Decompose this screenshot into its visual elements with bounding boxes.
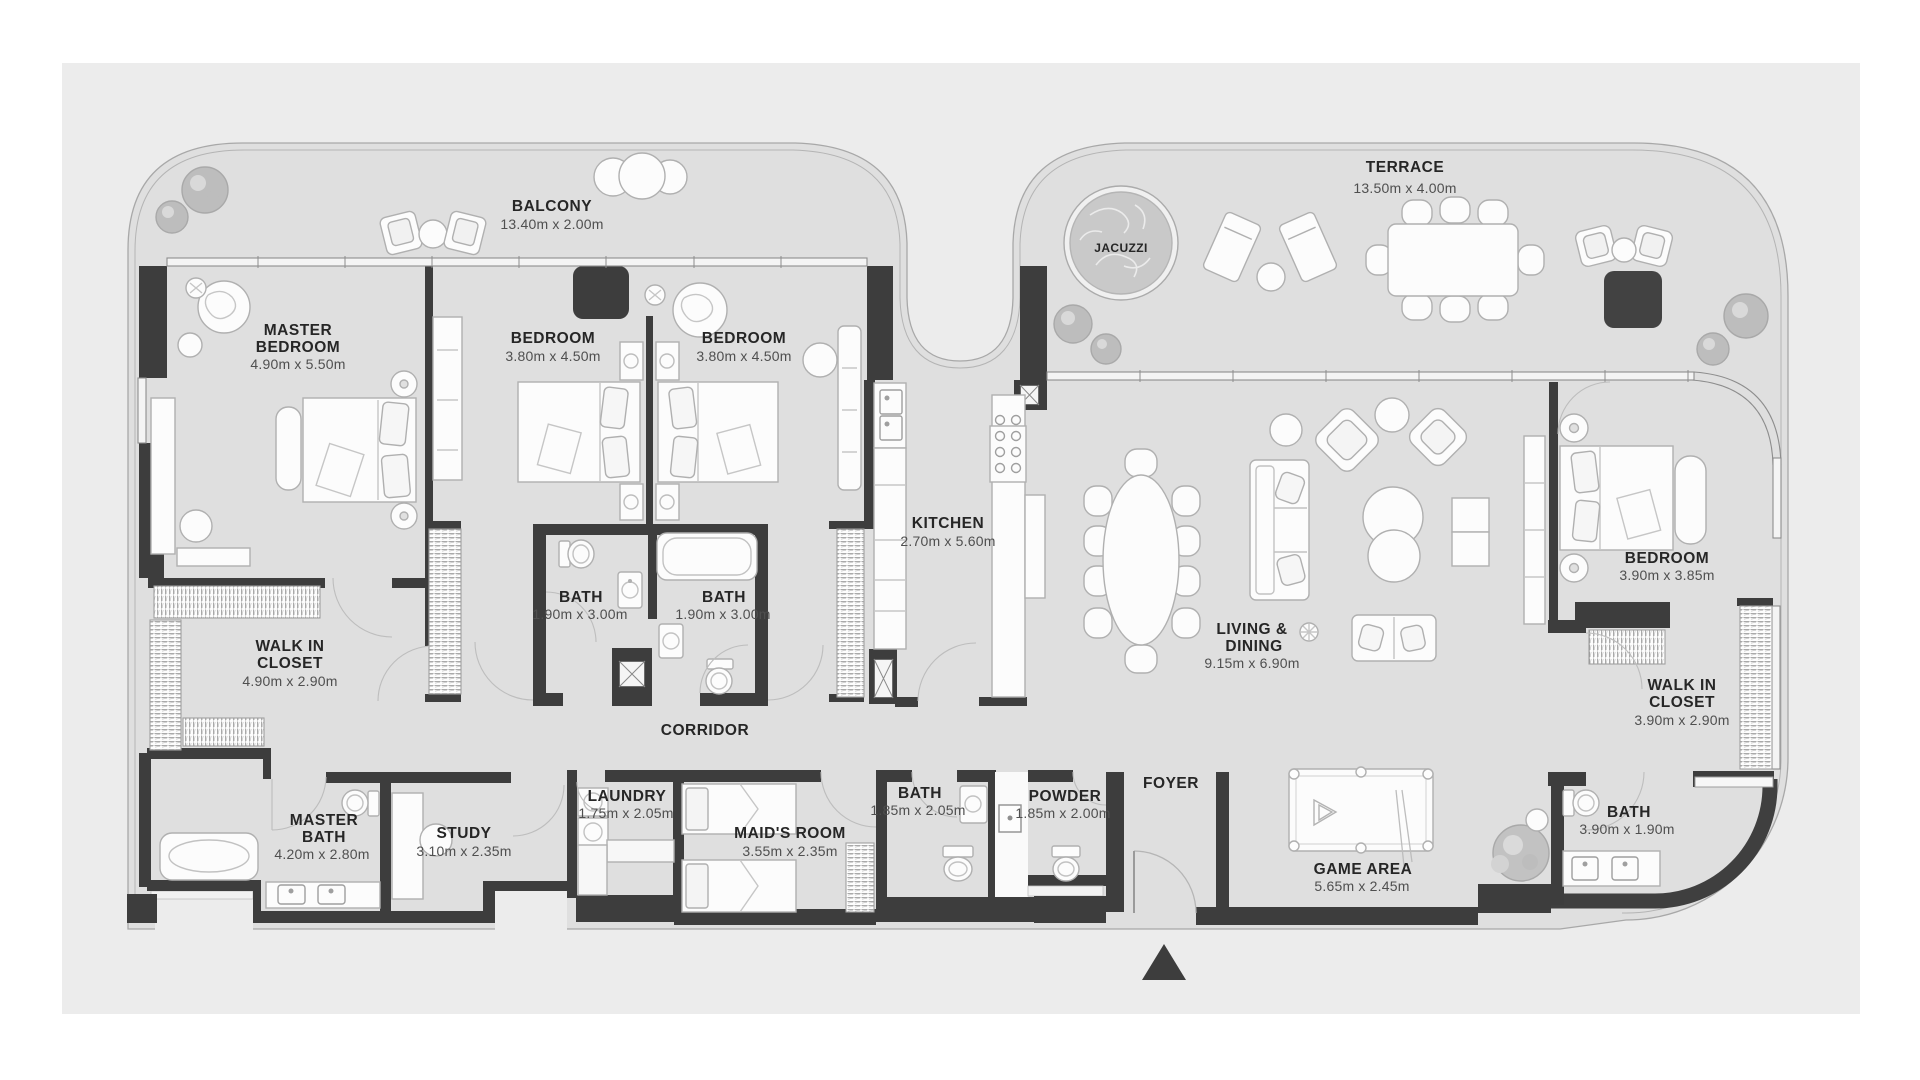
svg-text:4.90m x 5.50m: 4.90m x 5.50m [250,356,345,372]
svg-text:LIVING &: LIVING & [1216,621,1287,638]
svg-text:3.55m x 2.35m: 3.55m x 2.35m [742,843,837,859]
svg-text:3.90m x 2.90m: 3.90m x 2.90m [1634,712,1729,728]
svg-text:DINING: DINING [1225,638,1282,655]
svg-text:BATH: BATH [302,829,346,846]
svg-text:MAID'S ROOM: MAID'S ROOM [734,825,846,842]
svg-text:BATH: BATH [1607,804,1651,821]
svg-text:LAUNDRY: LAUNDRY [588,788,667,805]
svg-text:13.50m x 4.00m: 13.50m x 4.00m [1353,180,1456,196]
svg-text:WALK IN: WALK IN [1648,677,1717,694]
svg-text:KITCHEN: KITCHEN [912,515,984,532]
svg-text:1.75m x 2.05m: 1.75m x 2.05m [578,805,673,821]
svg-text:1.85m x 2.05m: 1.85m x 2.05m [870,802,965,818]
svg-text:BEDROOM: BEDROOM [1625,550,1709,567]
svg-text:4.20m x 2.80m: 4.20m x 2.80m [274,846,369,862]
svg-text:STUDY: STUDY [436,825,491,842]
svg-text:4.90m x 2.90m: 4.90m x 2.90m [242,673,337,689]
svg-text:FOYER: FOYER [1143,775,1199,792]
svg-text:3.80m x 4.50m: 3.80m x 4.50m [505,348,600,364]
svg-text:3.90m x 1.90m: 3.90m x 1.90m [1579,821,1674,837]
svg-text:3.90m x 3.85m: 3.90m x 3.85m [1619,567,1714,583]
svg-text:POWDER: POWDER [1029,788,1102,805]
svg-text:1.85m x 2.00m: 1.85m x 2.00m [1015,805,1110,821]
svg-text:BALCONY: BALCONY [512,198,592,215]
svg-text:1.90m x 3.00m: 1.90m x 3.00m [675,606,770,622]
svg-text:CORRIDOR: CORRIDOR [661,722,749,739]
svg-text:TERRACE: TERRACE [1366,159,1444,176]
svg-text:BATH: BATH [559,589,603,606]
svg-text:BATH: BATH [702,589,746,606]
svg-text:1.90m x 3.00m: 1.90m x 3.00m [532,606,627,622]
svg-text:9.15m x 6.90m: 9.15m x 6.90m [1204,655,1299,671]
svg-text:CLOSET: CLOSET [257,655,323,672]
svg-text:BATH: BATH [898,785,942,802]
svg-text:CLOSET: CLOSET [1649,694,1715,711]
svg-text:3.10m x 2.35m: 3.10m x 2.35m [416,843,511,859]
svg-text:BEDROOM: BEDROOM [702,330,786,347]
svg-text:BEDROOM: BEDROOM [511,330,595,347]
svg-text:13.40m x 2.00m: 13.40m x 2.00m [500,216,603,232]
svg-text:3.80m x 4.50m: 3.80m x 4.50m [696,348,791,364]
svg-text:2.70m x 5.60m: 2.70m x 5.60m [900,533,995,549]
svg-text:BEDROOM: BEDROOM [256,339,340,356]
svg-text:WALK IN: WALK IN [256,638,325,655]
svg-text:JACUZZI: JACUZZI [1094,241,1147,255]
svg-text:MASTER: MASTER [264,322,332,339]
svg-text:GAME AREA: GAME AREA [1314,861,1413,878]
svg-text:MASTER: MASTER [290,812,358,829]
svg-text:5.65m x 2.45m: 5.65m x 2.45m [1314,878,1409,894]
